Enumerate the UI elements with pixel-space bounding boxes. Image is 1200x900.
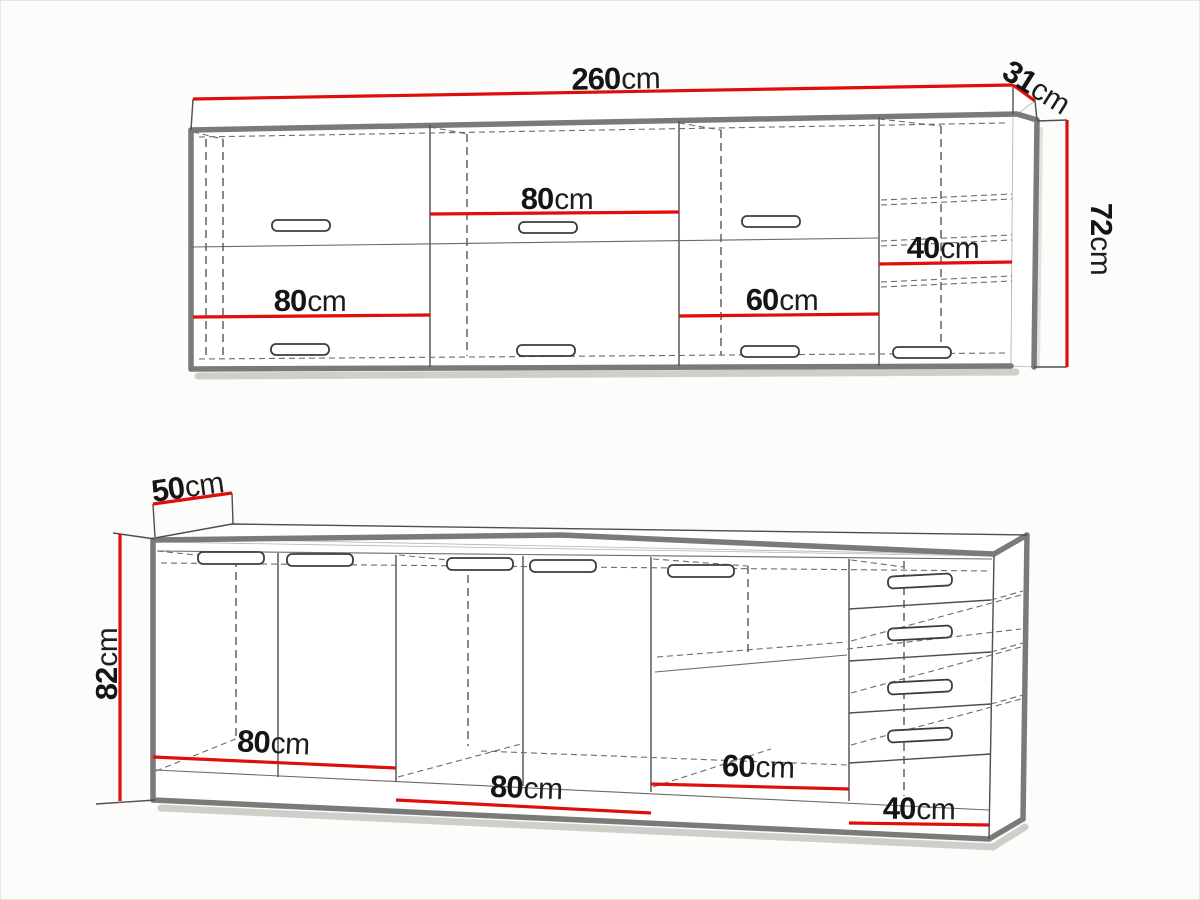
wall-cabinet: 260cm 31cm 72cm 80cm 80cm 60cm 40cm [191, 53, 1119, 376]
door-handle [272, 220, 330, 231]
door-handle [530, 560, 596, 572]
drawer-handle [888, 625, 953, 640]
wall-width-label: 260cm [571, 60, 660, 97]
door-handle [742, 216, 800, 227]
drawer-handle [888, 573, 953, 588]
door-handle [198, 552, 264, 564]
wall-section3-label: 60cm [746, 282, 818, 317]
base-section2-label: 80cm [490, 769, 564, 807]
wall-height-label: 72cm [1084, 203, 1119, 275]
door-handle [287, 554, 353, 566]
door-handle [741, 346, 799, 357]
base-section3-label: 60cm [722, 748, 795, 785]
door-handle [517, 345, 575, 356]
base-cabinet: 50cm 82cm 80cm 80cm 60cm 40cm [89, 464, 1027, 847]
base-height-label: 82cm [89, 628, 124, 700]
drawer-handle [888, 679, 953, 694]
cabinet-dimension-diagram: 260cm 31cm 72cm 80cm 80cm 60cm 40cm [0, 0, 1200, 900]
base-depth-label: 50cm [149, 464, 226, 509]
door-handle [668, 565, 734, 577]
base-section1-label: 80cm [236, 723, 310, 761]
drawer-handle [888, 727, 953, 742]
base-section4-label: 40cm [883, 791, 956, 827]
base-cabinet-front-face [153, 542, 994, 839]
door-handle [271, 344, 329, 355]
diagram-canvas: 260cm 31cm 72cm 80cm 80cm 60cm 40cm [1, 1, 1199, 899]
door-handle [447, 558, 513, 570]
wall-section2-label: 80cm [521, 181, 593, 216]
wall-section1-label: 80cm [274, 283, 346, 318]
door-handle [519, 222, 577, 233]
door-handle [893, 347, 951, 358]
wall-section4-label: 40cm [907, 230, 979, 265]
